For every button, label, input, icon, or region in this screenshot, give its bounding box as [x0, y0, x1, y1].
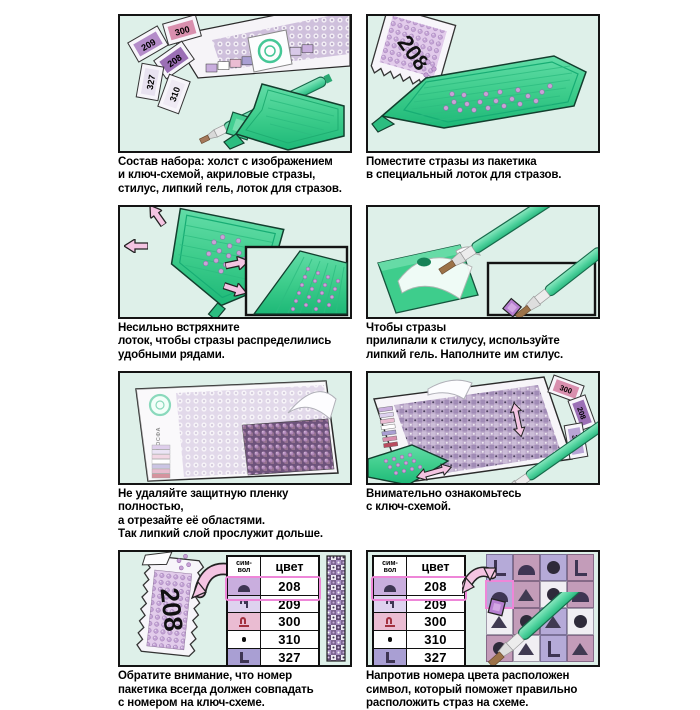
- schema-cell: [513, 554, 540, 581]
- step-panel-4: Чтобы стразы прилипали к стилусу, исполь…: [366, 205, 600, 362]
- color-number-cell: 300: [261, 613, 318, 631]
- symbol-cell: [228, 578, 261, 596]
- kit-contents-illustration: 209 300 208 327 310: [120, 16, 350, 151]
- l-symbol-icon: [384, 650, 397, 663]
- color-number-cell: 300: [407, 613, 464, 631]
- step-illustration-3: [118, 205, 352, 319]
- shake-arrow-icon: [144, 207, 169, 229]
- step-caption-7: Обратите внимание, что номер пакетика вс…: [118, 670, 352, 710]
- match-arrow: [462, 560, 496, 594]
- step-caption-4: Чтобы стразы прилипали к стилусу, исполь…: [366, 322, 600, 362]
- table-header-symbol: сим- вол: [228, 557, 261, 578]
- color-number-cell: 327: [261, 649, 318, 667]
- schema-symbol-icon: [544, 558, 563, 577]
- step-illustration-6: 300 208 327: [366, 371, 600, 485]
- dot-symbol-icon: [238, 633, 251, 646]
- step-illustration-5: МОСФА: [118, 371, 352, 485]
- dot-symbol-icon: [384, 633, 397, 646]
- aligned-stones-inset: [246, 247, 347, 315]
- schema-symbol-icon: [517, 558, 536, 577]
- symbol-cell: [374, 596, 407, 614]
- shake-tray-illustration: [120, 207, 350, 317]
- stylus-pen: [466, 592, 598, 666]
- symbol-cell: [374, 631, 407, 649]
- symbol-color-table: сим- вол цвет 208 209 300 310 327: [372, 555, 466, 667]
- step-panel-2: 208: [366, 14, 600, 196]
- arch-symbol-icon: [238, 615, 251, 628]
- instruction-sheet: 209 300 208 327 310: [118, 14, 600, 710]
- symbol-color-table: сим- вол цвет 208 209 300 310 327: [226, 555, 320, 667]
- color-number-cell: 327: [407, 649, 464, 667]
- symbol-cell: [374, 578, 407, 596]
- hook-symbol-icon: [384, 598, 397, 611]
- step-panel-3: Несильно встряхните лоток, чтобы стразы …: [118, 205, 352, 362]
- step-panel-1: 209 300 208 327 310: [118, 14, 352, 196]
- stone-on-stylus-inset: [488, 246, 598, 317]
- table-header-color: цвет: [261, 557, 318, 578]
- dome-symbol-icon: [238, 580, 251, 593]
- step-illustration-4: [366, 205, 600, 319]
- step-panel-6: 300 208 327: [366, 371, 600, 541]
- step-caption-5: Не удаляйте защитную пленку полностью, а…: [118, 488, 352, 541]
- gel-hole: [417, 257, 431, 266]
- arch-symbol-icon: [384, 615, 397, 628]
- symbol-cell: [228, 631, 261, 649]
- completed-area: [242, 419, 334, 475]
- schema-cell: [567, 554, 594, 581]
- packet-label: 208: [155, 587, 189, 633]
- step-panel-8: сим- вол цвет 208 209 300 310 327: [366, 550, 600, 710]
- pour-into-tray-illustration: 208: [368, 16, 598, 151]
- table-header-color: цвет: [407, 557, 464, 578]
- step-caption-6: Внимательно ознакомьтесь с ключ-схемой.: [366, 488, 600, 515]
- hook-symbol-icon: [238, 598, 251, 611]
- chart-strip: [326, 555, 346, 662]
- color-number-cell: 208: [261, 578, 318, 596]
- glue-pad: [248, 30, 292, 72]
- step-caption-1: Состав набора: холст с изображением и кл…: [118, 156, 352, 196]
- step-illustration-8: сим- вол цвет 208 209 300 310 327: [366, 550, 600, 667]
- schema-cell: [540, 554, 567, 581]
- protective-film-illustration: МОСФА: [120, 373, 350, 483]
- color-number-cell: 310: [261, 631, 318, 649]
- shake-arrow-icon: [124, 239, 148, 253]
- schema-symbol-icon: [571, 558, 590, 577]
- l-symbol-icon: [238, 650, 251, 663]
- gel-stylus-illustration: [368, 207, 598, 317]
- symbol-cell: [228, 596, 261, 614]
- step-illustration-1: 209 300 208 327 310: [118, 14, 352, 153]
- table-header-symbol: сим- вол: [374, 557, 407, 578]
- step-panel-5: МОСФА Не удаляйте защитную пленку полнос…: [118, 371, 352, 541]
- step-caption-8: Напротив номера цвета расположен символ,…: [366, 670, 600, 710]
- color-number-cell: 310: [407, 631, 464, 649]
- symbol-cell: [228, 649, 261, 667]
- color-number-cell: 209: [407, 596, 464, 614]
- color-number-cell: 209: [261, 596, 318, 614]
- step-caption-3: Несильно встряхните лоток, чтобы стразы …: [118, 322, 352, 362]
- step-illustration-7: 208 сим- вол цвет 208 209 300 310 3: [118, 550, 352, 667]
- study-key-chart-illustration: 300 208 327: [368, 373, 598, 483]
- step-panel-7: 208 сим- вол цвет 208 209 300 310 3: [118, 550, 352, 710]
- symbol-cell: [374, 649, 407, 667]
- symbol-cell: [228, 613, 261, 631]
- dome-symbol-icon: [384, 580, 397, 593]
- step-caption-2: Поместите стразы из пакетика в специальн…: [366, 156, 600, 183]
- symbol-cell: [374, 613, 407, 631]
- step-illustration-2: 208: [366, 14, 600, 153]
- color-number-cell: 208: [407, 578, 464, 596]
